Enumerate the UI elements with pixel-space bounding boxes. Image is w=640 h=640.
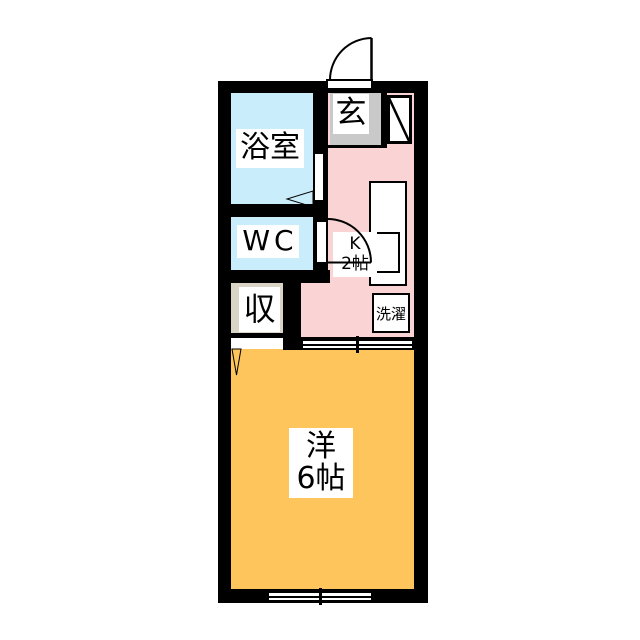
kitchen-sink <box>374 232 400 273</box>
wc-label: WC <box>237 225 299 258</box>
wall-left <box>218 81 231 603</box>
western-room-label-line1: 洋 <box>306 431 336 463</box>
entrance-label: 玄 <box>333 94 369 134</box>
western-room-label-line2: 6帖 <box>296 463 345 495</box>
wall-bathroom-wc <box>218 204 328 217</box>
kitchen-label-line2: 2帖 <box>341 255 369 275</box>
wc-door-opening <box>317 222 326 262</box>
bathroom-label: 浴室 <box>236 129 304 168</box>
kitchen-label: K 2帖 <box>333 232 377 277</box>
bathroom-door-opening <box>315 154 323 200</box>
entrance-threshold <box>326 79 373 90</box>
sliding-door-tick <box>356 336 359 353</box>
closet-opening <box>231 338 283 349</box>
wall-entrance-bottom-line <box>327 145 387 148</box>
wall-top <box>218 81 428 93</box>
kitchen-label-line1: K <box>349 235 360 255</box>
wall-right <box>414 81 428 603</box>
shoe-cabinet <box>387 95 412 144</box>
entrance-door-arc-icon <box>330 38 372 80</box>
floor-plan-canvas: 洗濯 浴室 WC 収 玄 K 2帖 洋 6帖 <box>0 0 640 640</box>
laundry-box: 洗濯 <box>372 293 410 333</box>
laundry-label: 洗濯 <box>376 303 406 324</box>
wall-wc-bottom <box>218 270 330 283</box>
western-room-label: 洋 6帖 <box>289 428 353 498</box>
window-tick <box>319 588 322 605</box>
closet-label: 収 <box>239 287 280 332</box>
